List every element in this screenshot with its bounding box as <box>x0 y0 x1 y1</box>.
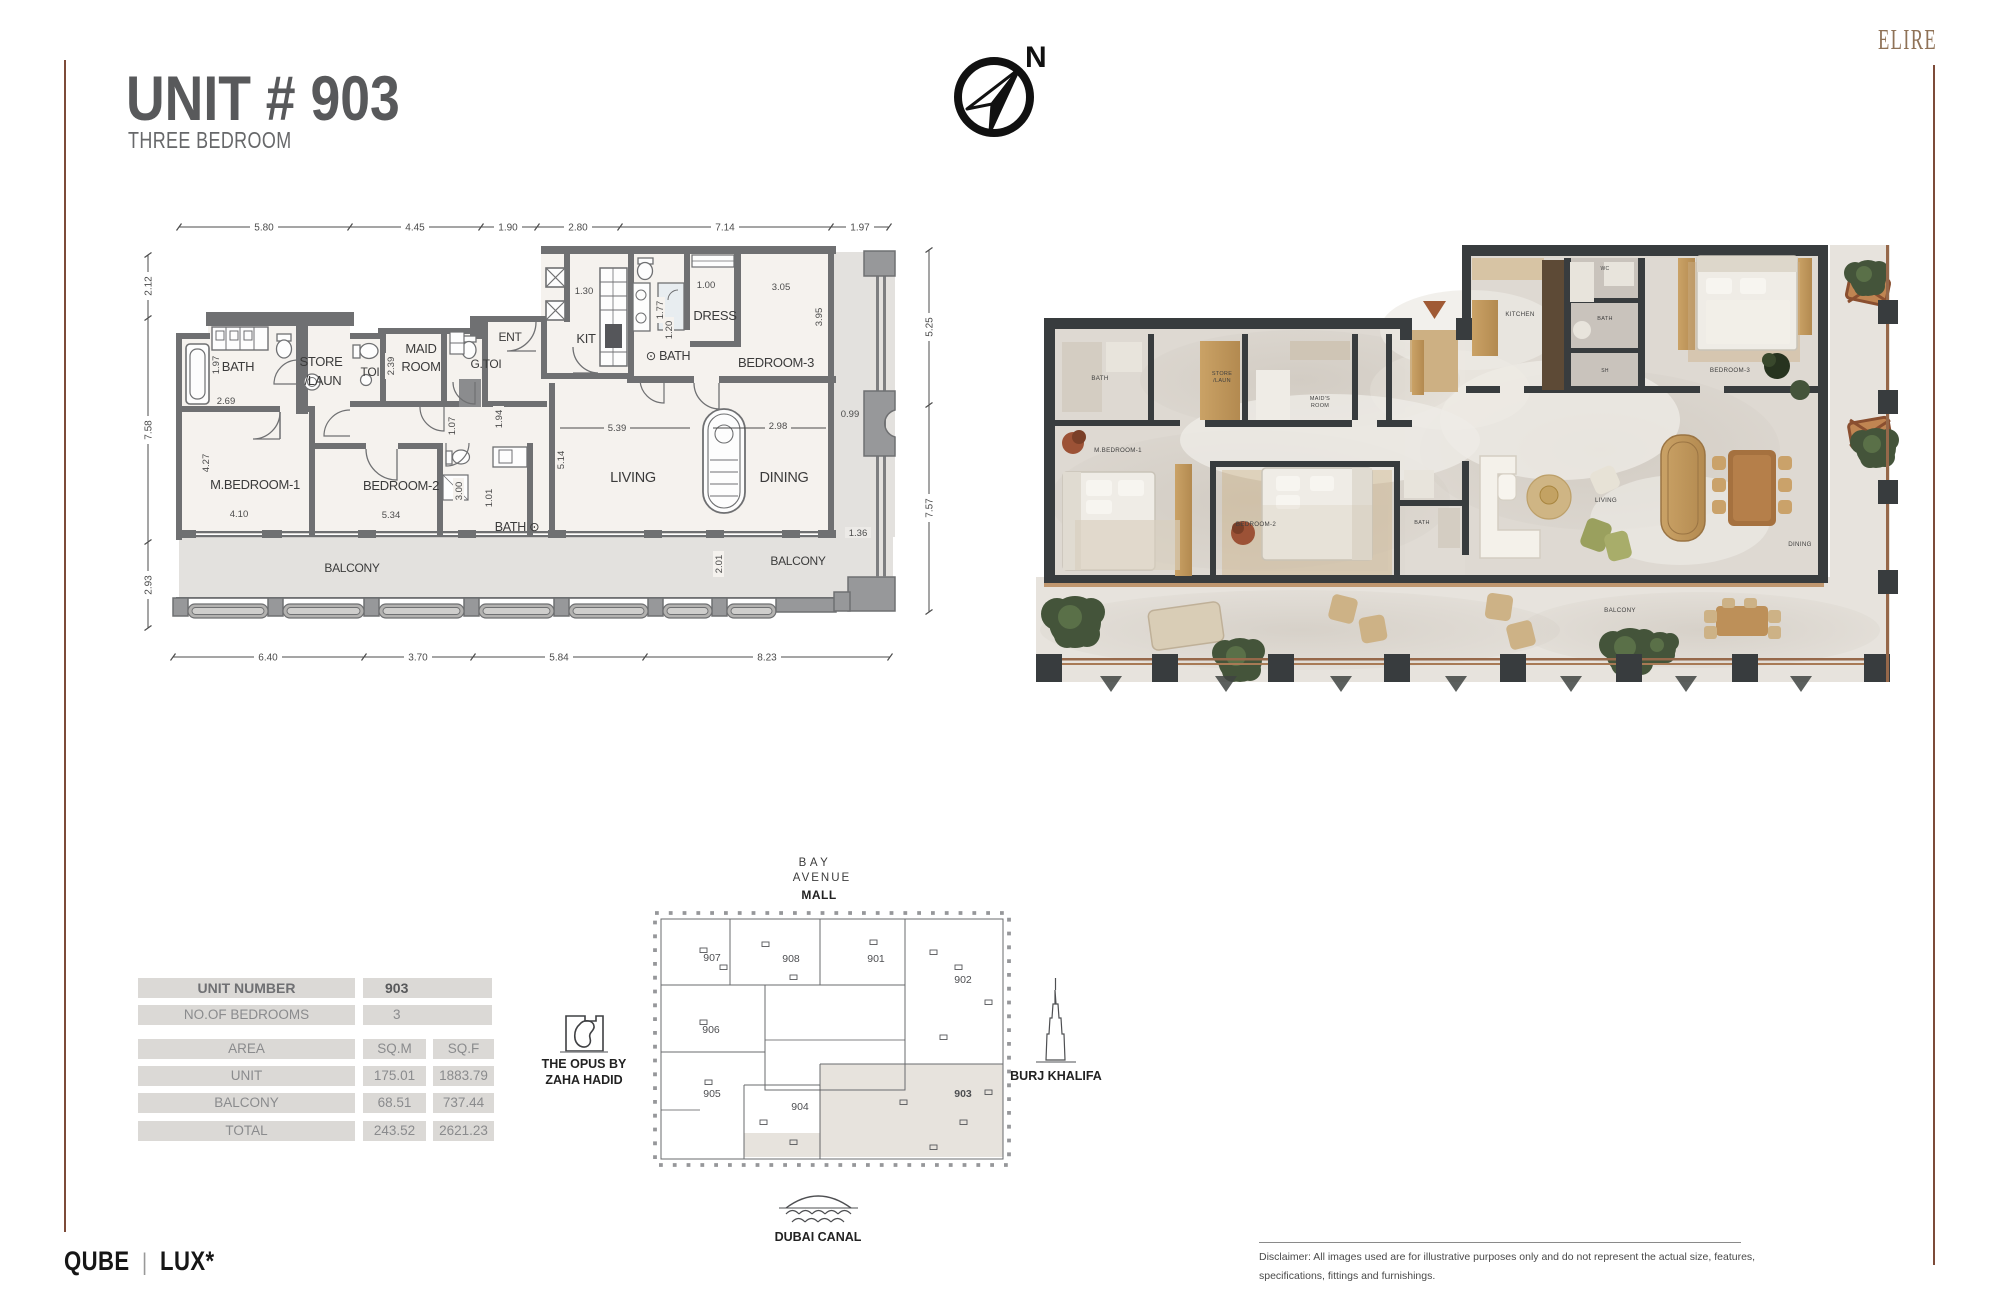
svg-text:N: N <box>1025 45 1047 74</box>
svg-text:1.97: 1.97 <box>850 223 870 234</box>
svg-text:5.84: 5.84 <box>549 653 569 664</box>
svg-text:⊙ BATH: ⊙ BATH <box>646 349 691 363</box>
svg-text:BATH: BATH <box>222 359 255 374</box>
svg-text:4.27: 4.27 <box>201 454 212 473</box>
svg-text:5.80: 5.80 <box>254 223 274 234</box>
svg-text:KIT: KIT <box>576 331 596 346</box>
svg-text:/LAUN: /LAUN <box>1213 378 1231 384</box>
svg-text:2.93: 2.93 <box>144 575 155 595</box>
svg-text:BALCONY: BALCONY <box>324 561 380 575</box>
svg-text:ZAHA HADID: ZAHA HADID <box>545 1073 622 1087</box>
svg-text:KITCHEN: KITCHEN <box>1505 311 1534 318</box>
svg-text:1.77: 1.77 <box>655 301 666 320</box>
svg-text:STORE: STORE <box>1212 371 1232 377</box>
svg-text:7.58: 7.58 <box>144 420 155 440</box>
svg-text:TOI: TOI <box>361 365 380 379</box>
svg-text:M.BEDROOM-1: M.BEDROOM-1 <box>1094 447 1142 454</box>
svg-text:ENT: ENT <box>498 330 522 344</box>
svg-text:6.40: 6.40 <box>258 653 278 664</box>
svg-text:2.69: 2.69 <box>217 396 236 407</box>
svg-text:MALL: MALL <box>801 888 836 902</box>
svg-text:BEDROOM-2: BEDROOM-2 <box>1236 521 1276 528</box>
svg-text:1.94: 1.94 <box>494 410 505 429</box>
svg-text:M.BEDROOM-1: M.BEDROOM-1 <box>210 477 300 492</box>
svg-text:LIVING: LIVING <box>610 470 656 486</box>
svg-text:LIVING: LIVING <box>1595 497 1617 504</box>
svg-text:DUBAI CANAL: DUBAI CANAL <box>775 1230 862 1244</box>
svg-text:902: 902 <box>954 974 972 986</box>
svg-text:BEDROOM-3: BEDROOM-3 <box>738 355 814 370</box>
svg-text:BEDROOM-3: BEDROOM-3 <box>1710 367 1750 374</box>
svg-text:/LAUN: /LAUN <box>305 373 342 388</box>
svg-text:0.99: 0.99 <box>841 409 860 420</box>
svg-text:2.98: 2.98 <box>769 421 788 432</box>
svg-text:BURJ KHALIFA: BURJ KHALIFA <box>1010 1069 1102 1083</box>
svg-text:MAID: MAID <box>405 341 436 356</box>
svg-text:903: 903 <box>954 1088 972 1100</box>
svg-text:1.97: 1.97 <box>211 356 222 375</box>
svg-text:BATH: BATH <box>1597 316 1612 322</box>
svg-text:2.12: 2.12 <box>144 276 155 296</box>
svg-text:908: 908 <box>782 953 800 965</box>
svg-text:2.39: 2.39 <box>386 357 397 376</box>
svg-text:4.10: 4.10 <box>230 509 249 520</box>
svg-text:1.00: 1.00 <box>697 280 716 291</box>
svg-text:3.05: 3.05 <box>772 282 791 293</box>
svg-text:904: 904 <box>791 1101 809 1113</box>
svg-text:DINING: DINING <box>1788 541 1811 548</box>
svg-text:1.90: 1.90 <box>498 223 518 234</box>
svg-text:907: 907 <box>703 952 721 964</box>
svg-text:906: 906 <box>702 1024 720 1036</box>
svg-text:DINING: DINING <box>760 470 809 486</box>
svg-text:3.00: 3.00 <box>454 482 465 501</box>
svg-text:4.45: 4.45 <box>405 223 425 234</box>
svg-text:SH: SH <box>1601 368 1609 374</box>
svg-text:5.34: 5.34 <box>382 510 401 521</box>
svg-text:1.36: 1.36 <box>849 528 868 539</box>
svg-text:BEDROOM-2: BEDROOM-2 <box>363 478 439 493</box>
svg-text:2.01: 2.01 <box>714 555 725 574</box>
svg-text:5.25: 5.25 <box>925 317 936 337</box>
svg-text:THE OPUS BY: THE OPUS BY <box>542 1057 627 1071</box>
svg-text:DRESS: DRESS <box>693 308 737 323</box>
svg-text:1.30: 1.30 <box>575 286 594 297</box>
svg-text:901: 901 <box>867 953 885 965</box>
svg-text:1.01: 1.01 <box>484 489 495 508</box>
svg-text:BAY: BAY <box>799 857 832 869</box>
svg-text:STORE: STORE <box>299 354 343 369</box>
svg-text:1.07: 1.07 <box>447 417 458 436</box>
svg-text:ROOM: ROOM <box>401 359 440 374</box>
svg-text:ROOM: ROOM <box>1311 403 1329 409</box>
svg-text:5.39: 5.39 <box>608 423 627 434</box>
svg-text:7.57: 7.57 <box>925 498 936 518</box>
svg-text:8.23: 8.23 <box>757 653 777 664</box>
svg-text:5.14: 5.14 <box>556 451 567 470</box>
svg-text:BATH: BATH <box>1091 375 1108 382</box>
svg-text:AVENUE: AVENUE <box>793 872 851 884</box>
svg-text:7.14: 7.14 <box>715 223 735 234</box>
svg-text:WC: WC <box>1601 266 1610 272</box>
svg-text:905: 905 <box>703 1088 721 1100</box>
svg-text:G.TOI: G.TOI <box>471 357 502 371</box>
svg-text:3.95: 3.95 <box>814 308 825 327</box>
svg-text:1.20: 1.20 <box>664 321 675 340</box>
svg-text:MAID'S: MAID'S <box>1310 396 1330 402</box>
svg-text:BALCONY: BALCONY <box>1604 607 1636 614</box>
svg-text:BATH: BATH <box>1414 520 1429 526</box>
svg-text:BALCONY: BALCONY <box>770 554 826 568</box>
svg-text:2.80: 2.80 <box>568 223 588 234</box>
svg-text:3.70: 3.70 <box>408 653 428 664</box>
svg-text:BATH ⊙: BATH ⊙ <box>495 520 540 534</box>
